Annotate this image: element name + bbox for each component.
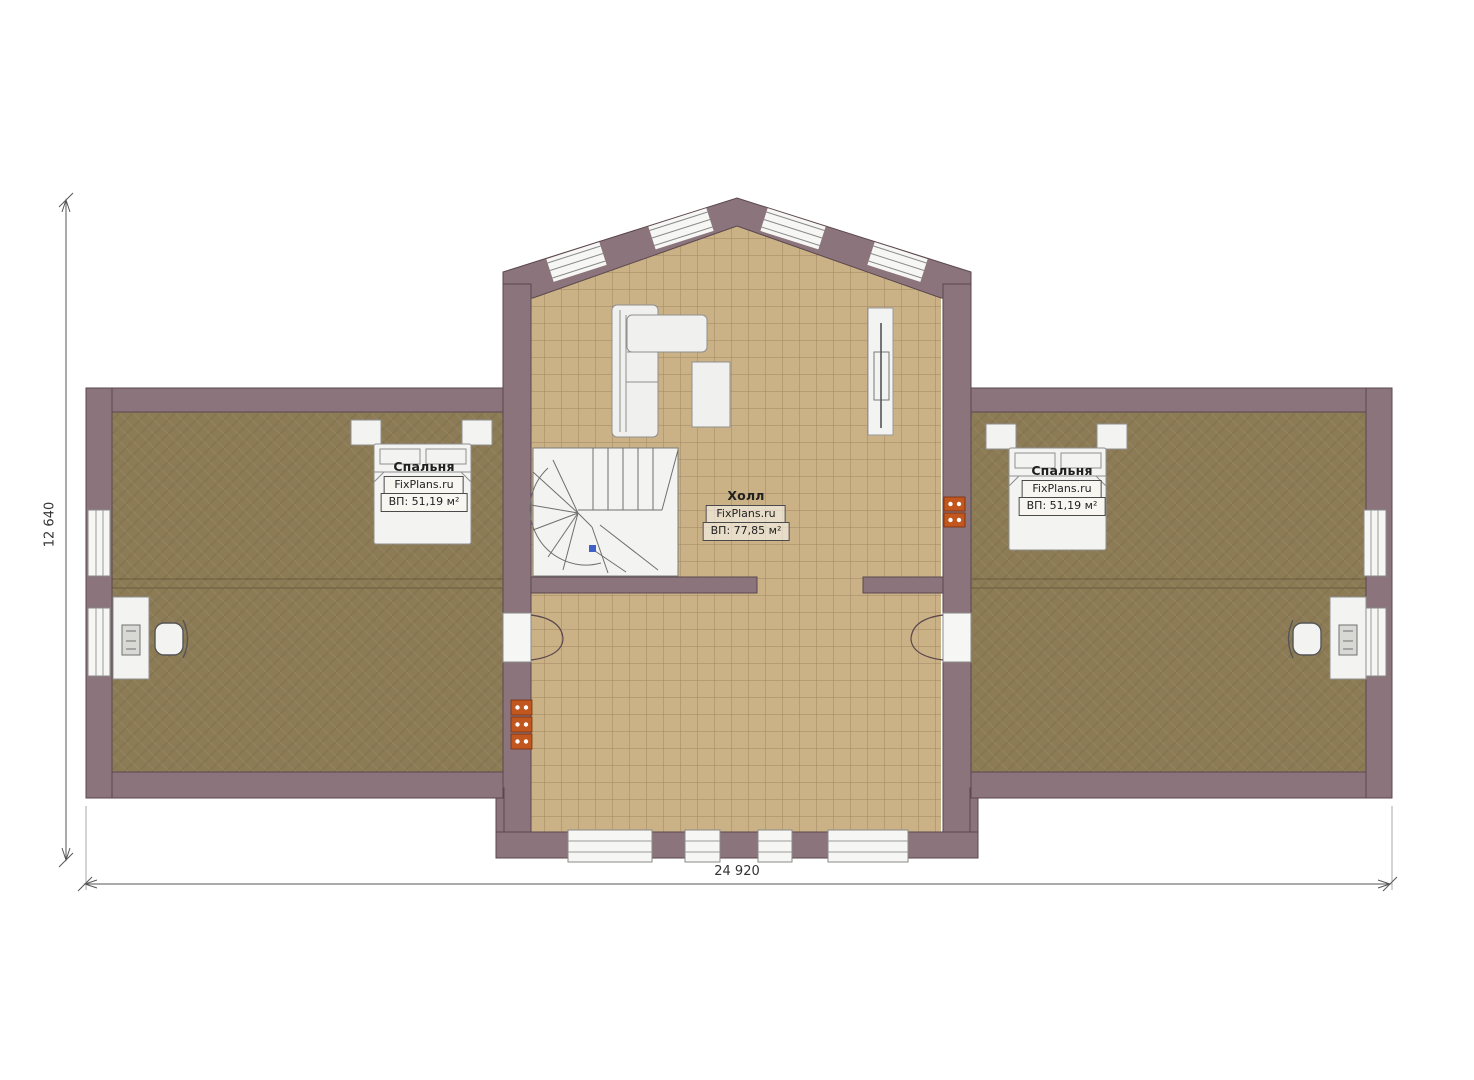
brand-label: FixPlans.ru [384,476,464,494]
desk-left [113,597,149,679]
room-label-hall: Холл FixPlans.ru ВП: 77,85 м² [703,488,790,541]
nightstand [351,420,381,445]
desk-right [1330,597,1366,679]
brand-label: FixPlans.ru [1022,480,1102,498]
nightstand [462,420,492,445]
floor-plan-page: Спальня FixPlans.ru ВП: 51,19 м² Холл Fi… [0,0,1474,1080]
tv-stand [868,308,893,435]
room-name: Спальня [1031,463,1092,478]
room-label-bedroom-left: Спальня FixPlans.ru ВП: 51,19 м² [381,459,468,512]
room-area: ВП: 77,85 м² [703,522,790,540]
nightstand [1097,424,1127,449]
staircase [530,448,678,576]
room-area: ВП: 51,19 м² [1019,497,1106,515]
laptop [122,625,140,655]
room-area: ВП: 51,19 м² [381,493,468,511]
dimension-line-left [59,193,73,867]
brand-label: FixPlans.ru [706,505,786,523]
room-label-bedroom-right: Спальня FixPlans.ru ВП: 51,19 м² [1019,463,1106,516]
nightstand [986,424,1016,449]
room-name: Спальня [393,459,454,474]
coffee-table [692,362,730,427]
dimension-height-label: 12 640 [43,493,58,557]
laptop [1339,625,1357,655]
socket-markers-left [511,700,532,749]
room-name: Холл [727,488,764,503]
dimension-width-label: 24 920 [714,864,760,879]
stair-marker [589,545,596,552]
